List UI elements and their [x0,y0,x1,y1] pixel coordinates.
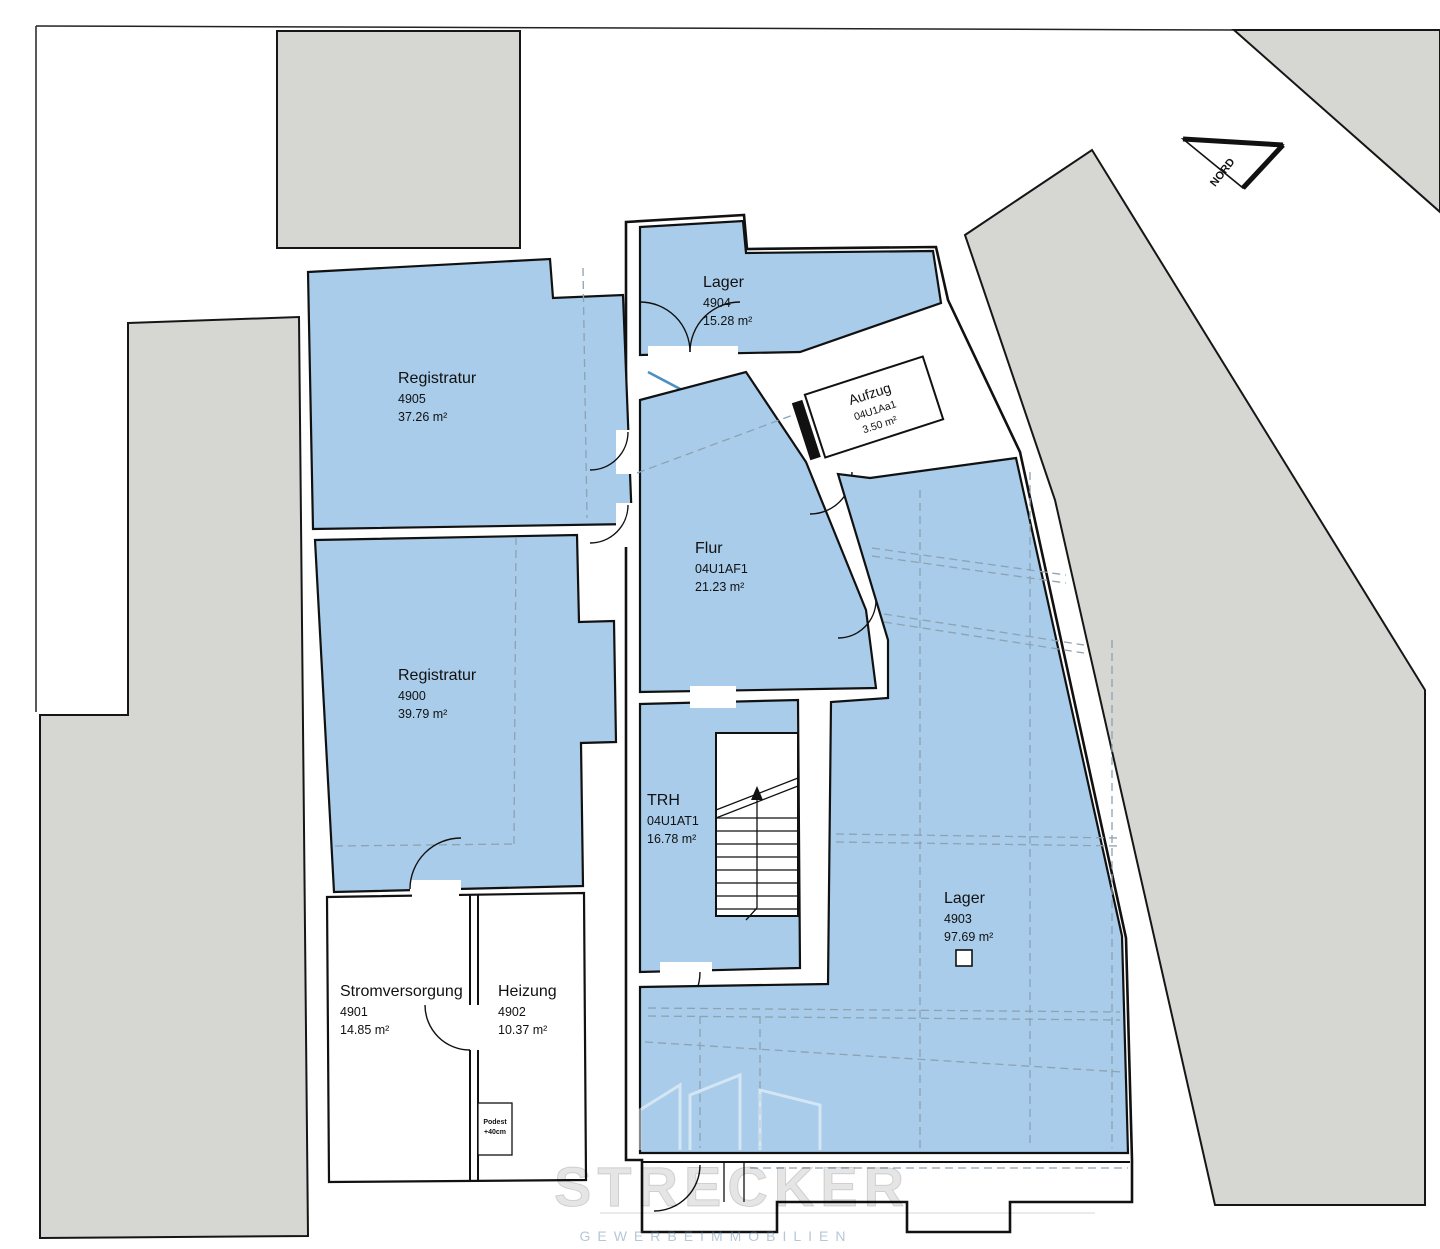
room-area: 16.78 m² [647,832,696,846]
room-name: Stromversorgung [340,983,463,1000]
staircase [716,733,798,920]
room-code: 4905 [398,392,426,406]
north-arrow-icon: NORD [1183,139,1283,189]
floor-plan-canvas: NORD Podest +40cm [0,0,1440,1249]
door-opening [660,962,712,978]
pillar [956,950,972,966]
room-code: 4901 [340,1005,368,1019]
room-code: 4903 [944,912,972,926]
corridor-opening [690,686,736,708]
door-opening [648,346,738,360]
room-area: 97.69 m² [944,930,993,944]
room-name: Lager [944,890,986,907]
room-code: 04U1AT1 [647,814,699,828]
watermark-tagline: GEWERBEIMMOBILIEN [579,1228,852,1244]
room-area: 21.23 m² [695,580,744,594]
room-name: Heizung [498,983,557,1000]
watermark-brand: STRECKER [554,1155,910,1218]
room-registratur-4900-shape [315,535,616,892]
room-name: Lager [703,274,745,291]
room-code: 4902 [498,1005,526,1019]
neighbor-building-top [277,31,520,248]
podest-label-2: +40cm [484,1129,506,1136]
room-name: Flur [695,540,723,557]
door-opening [412,888,459,900]
room-code: 4900 [398,689,426,703]
room-name: Registratur [398,667,477,684]
door-opening [616,503,636,547]
boundary-top-line [36,26,1236,30]
podest-label-1: Podest [483,1119,507,1126]
neighbor-building-left [40,317,308,1238]
room-area: 37.26 m² [398,410,447,424]
room-area: 15.28 m² [703,314,752,328]
room-name: Registratur [398,370,477,387]
door-opening [616,430,636,474]
room-name: TRH [647,792,680,809]
room-code: 04U1AF1 [695,562,748,576]
neighbor-building-top-right [1234,30,1440,212]
room-area: 14.85 m² [340,1023,389,1037]
room-code: 4904 [703,296,731,310]
room-area: 39.79 m² [398,707,447,721]
utility-rooms-shape [327,893,586,1182]
floor-plan-page: NORD Podest +40cm [0,0,1440,1249]
room-area: 10.37 m² [498,1023,547,1037]
